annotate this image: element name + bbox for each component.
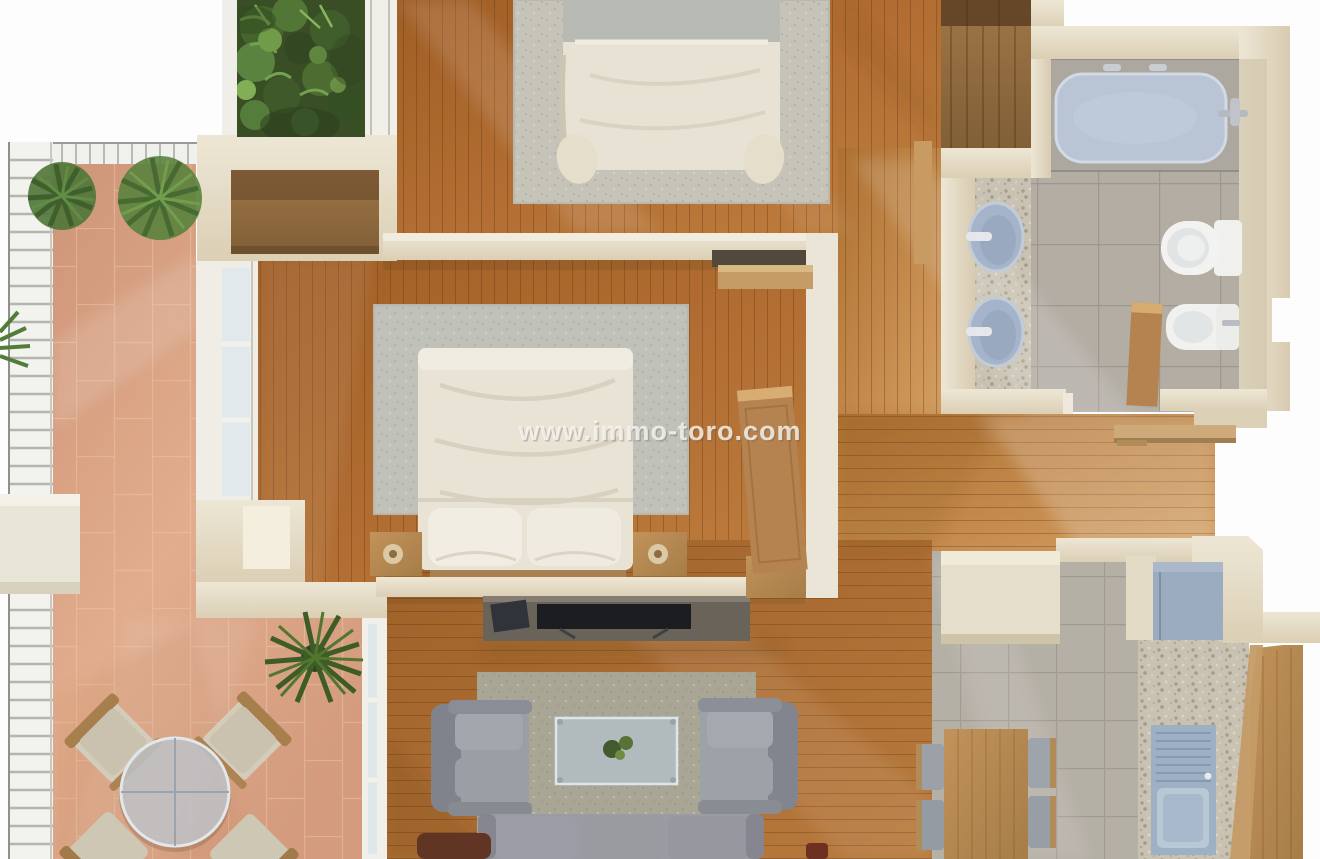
svg-text:www.immo-toro.com: www.immo-toro.com: [517, 416, 801, 446]
